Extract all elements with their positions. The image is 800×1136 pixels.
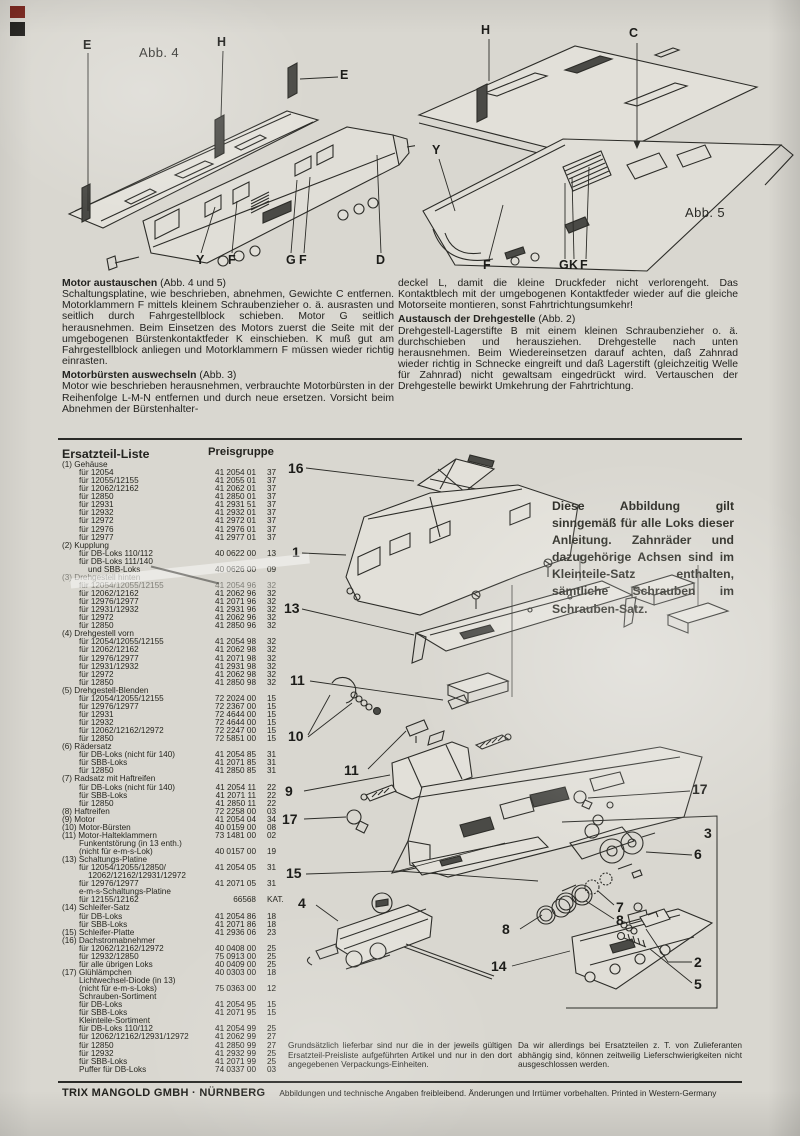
price-group: 15 bbox=[256, 1009, 288, 1017]
part-letter-label: K bbox=[569, 259, 578, 271]
callout-number: 5 bbox=[694, 977, 702, 991]
part-number: 72 5851 00 bbox=[196, 735, 256, 743]
figure-abb5: Abb. 5 HCYFGKF bbox=[415, 15, 795, 277]
figure-abb4: Abb. 4 EHEYFGFD bbox=[55, 25, 415, 275]
price-group: 32 bbox=[256, 622, 288, 630]
availability-note: Grundsätzlich lieferbar sind nur die in … bbox=[288, 1041, 512, 1070]
part-letter-label: Y bbox=[432, 144, 440, 156]
callout-number: 2 bbox=[694, 955, 702, 969]
corner-mark-red bbox=[10, 6, 25, 18]
section-heading: Austausch der Drehgestelle (Abb. 2) bbox=[398, 314, 738, 325]
parts-rows: (1) Gehäusefür 1205441 2054 0137für 1205… bbox=[62, 461, 288, 1074]
diagram-note: Diese Abbildung gilt sinngemäß für alle … bbox=[552, 498, 734, 618]
part-number: 40 0157 00 bbox=[196, 848, 256, 856]
part-number: 41 2054 05 bbox=[196, 864, 256, 872]
part-number: 66568 bbox=[196, 896, 256, 904]
section-body: Drehgestell-Lagerstifte B mit einem klei… bbox=[398, 326, 738, 393]
part-number: 41 2850 85 bbox=[196, 767, 256, 775]
price-group: KAT. bbox=[256, 896, 288, 904]
part-number: 41 2977 01 bbox=[196, 534, 256, 542]
part-number: 41 2071 95 bbox=[196, 1009, 256, 1017]
brush-and-spring-parts bbox=[332, 677, 381, 714]
front-bogie-part bbox=[307, 893, 432, 969]
callout-number: 17 bbox=[692, 782, 708, 796]
price-group: 31 bbox=[256, 864, 288, 872]
parts-list: Ersatzteil-Liste Preisgruppe (1) Gehäuse… bbox=[62, 445, 288, 1074]
part-number: 73 1481 00 bbox=[196, 832, 256, 840]
scanned-page: Abb. 4 EHEYFGFD bbox=[0, 0, 800, 1136]
part-letter-label: E bbox=[83, 39, 91, 51]
part-number: 41 2054 96 bbox=[196, 582, 256, 590]
section-divider bbox=[58, 438, 742, 440]
part-letter-label: F bbox=[299, 254, 307, 266]
price-group: 32 bbox=[256, 582, 288, 590]
price-group: 32 bbox=[256, 679, 288, 687]
price-group: 37 bbox=[256, 534, 288, 542]
legal-text: Abbildungen und technische Angaben freib… bbox=[279, 1088, 716, 1098]
company-name: TRIX MANGOLD GMBH · NÜRNBERG bbox=[62, 1087, 265, 1099]
locomotive-drawing-abb5 bbox=[415, 15, 795, 277]
part-number: 41 2071 05 bbox=[196, 880, 256, 888]
part-number: 41 2850 96 bbox=[196, 622, 256, 630]
part-number: 40 0303 00 bbox=[196, 969, 256, 977]
part-number: 75 0363 00 bbox=[196, 985, 256, 993]
price-group: 03 bbox=[256, 1066, 288, 1074]
footer-divider bbox=[58, 1081, 742, 1083]
body-shell-part bbox=[346, 485, 578, 615]
callout-number: 3 bbox=[704, 826, 712, 840]
callout-number: 15 bbox=[286, 866, 302, 880]
callout-number: 10 bbox=[288, 729, 304, 743]
section-body: Motor wie beschrieben herausnehmen, verb… bbox=[62, 381, 394, 414]
figure-caption-abb4: Abb. 4 bbox=[139, 45, 179, 60]
part-letter-label: D bbox=[376, 254, 385, 266]
parts-list-title: Ersatzteil-Liste bbox=[62, 447, 149, 461]
price-group: 18 bbox=[256, 969, 288, 977]
part-letter-label: F bbox=[228, 254, 236, 266]
supplier-note: Da wir allerdings bei Ersatzteilen z. T.… bbox=[518, 1041, 742, 1070]
part-letter-label: G bbox=[286, 254, 296, 266]
parts-list-header: Ersatzteil-Liste Preisgruppe bbox=[62, 445, 288, 461]
callout-number: 4 bbox=[298, 896, 306, 910]
axle-rod-part bbox=[404, 944, 494, 979]
parts-row: Puffer für DB-Loks74 0337 0003 bbox=[62, 1066, 288, 1074]
price-group: 19 bbox=[256, 848, 288, 856]
part-number: 41 2936 06 bbox=[196, 929, 256, 937]
motor-clip-parts bbox=[406, 695, 468, 743]
callout-number: 8 bbox=[502, 922, 510, 936]
callout-number: 14 bbox=[491, 959, 507, 973]
callout-number: 16 bbox=[288, 461, 304, 475]
price-group: 02 bbox=[256, 832, 288, 840]
part-letter-label: E bbox=[340, 69, 348, 81]
part-label: Puffer für DB-Loks bbox=[62, 1066, 196, 1074]
price-group: 31 bbox=[256, 767, 288, 775]
callout-number: 11 bbox=[344, 763, 359, 777]
part-number: 74 0337 00 bbox=[196, 1066, 256, 1074]
part-letter-label: C bbox=[629, 27, 638, 39]
part-letter-label: F bbox=[483, 259, 491, 271]
part-letter-label: G bbox=[559, 259, 569, 271]
callout-number: 8 bbox=[616, 913, 624, 927]
part-letter-label: H bbox=[217, 36, 226, 48]
section-heading: Motorbürsten auswechseln (Abb. 3) bbox=[62, 370, 394, 381]
callout-number: 11 bbox=[290, 673, 305, 687]
callout-number: 6 bbox=[694, 847, 702, 861]
part-letter-label: Y bbox=[196, 254, 204, 266]
price-group: 23 bbox=[256, 929, 288, 937]
part-number: 41 2850 98 bbox=[196, 679, 256, 687]
section-heading: Motor austauschen (Abb. 4 und 5) bbox=[62, 278, 394, 289]
price-group: 12 bbox=[256, 985, 288, 993]
figure-caption-abb5: Abb. 5 bbox=[685, 205, 725, 220]
part-letter-label: F bbox=[580, 259, 588, 271]
section-body: deckel L, damit die kleine Druckfeder ni… bbox=[398, 278, 738, 311]
price-group-header: Preisgruppe bbox=[208, 446, 274, 458]
footer: TRIX MANGOLD GMBH · NÜRNBERG Abbildungen… bbox=[62, 1087, 742, 1099]
section-body: Schaltungsplatine, wie beschrieben, abne… bbox=[62, 289, 394, 367]
price-group: 31 bbox=[256, 880, 288, 888]
price-group: 15 bbox=[256, 735, 288, 743]
corner-mark-black bbox=[10, 22, 25, 36]
part-number: 40 0622 00 bbox=[196, 550, 256, 558]
part-letter-label: H bbox=[481, 24, 490, 36]
locomotive-drawing-abb4 bbox=[55, 25, 415, 275]
instruction-column-right: deckel L, damit die kleine Druckfeder ni… bbox=[398, 278, 738, 393]
instruction-column-left: Motor austauschen (Abb. 4 und 5) Schaltu… bbox=[62, 278, 394, 415]
